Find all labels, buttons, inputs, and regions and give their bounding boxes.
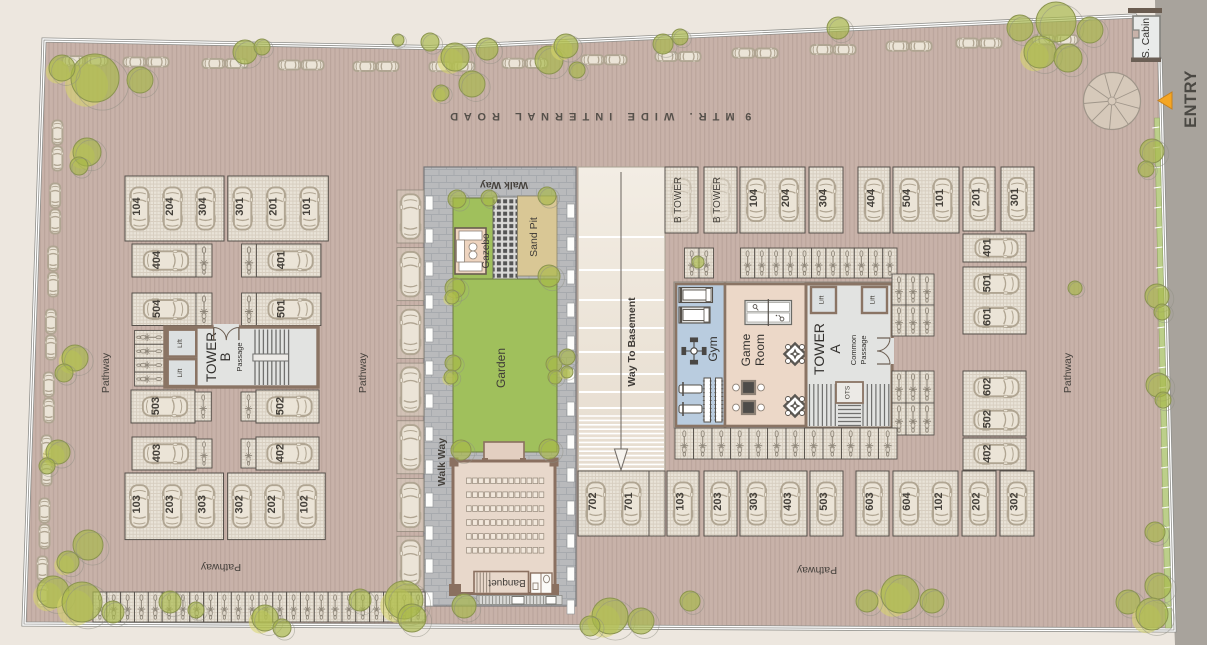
svg-text:404: 404: [151, 250, 163, 269]
svg-text:303: 303: [197, 495, 209, 513]
svg-text:403: 403: [782, 492, 794, 510]
svg-text:402: 402: [275, 444, 287, 462]
svg-text:702: 702: [587, 492, 599, 510]
svg-text:501: 501: [276, 300, 288, 318]
svg-text:B TOWER: B TOWER: [712, 177, 723, 223]
svg-text:B TOWER: B TOWER: [673, 177, 684, 223]
svg-text:OTS: OTS: [845, 385, 852, 399]
svg-text:401: 401: [276, 251, 288, 269]
svg-text:404: 404: [866, 188, 878, 207]
svg-text:9 M T R . W I D E I N T E: 9 M T R . W I D E I N T E R N A L R O A …: [449, 110, 752, 122]
svg-text:202: 202: [971, 492, 983, 510]
svg-text:104: 104: [748, 188, 760, 207]
svg-text:504: 504: [901, 188, 913, 207]
svg-text:Gazebo: Gazebo: [481, 233, 492, 268]
svg-text:Sand Pit: Sand Pit: [528, 217, 540, 257]
svg-text:103: 103: [675, 492, 687, 510]
svg-text:502: 502: [982, 410, 994, 428]
svg-text:Common: Common: [849, 335, 858, 365]
svg-text:201: 201: [268, 197, 280, 215]
svg-text:301: 301: [1009, 188, 1021, 206]
svg-text:304: 304: [197, 196, 209, 215]
svg-text:604: 604: [901, 491, 913, 510]
svg-text:Pathway: Pathway: [200, 561, 241, 573]
svg-text:Room: Room: [753, 334, 767, 366]
svg-text:301: 301: [234, 197, 246, 215]
svg-text:Banquet: Banquet: [488, 577, 525, 588]
svg-text:Garden: Garden: [494, 348, 508, 388]
svg-text:103: 103: [131, 495, 143, 513]
svg-text:S. Cabin: S. Cabin: [1140, 18, 1152, 58]
svg-text:202: 202: [266, 495, 278, 513]
svg-text:B: B: [218, 352, 233, 361]
svg-text:ENTRY: ENTRY: [1182, 70, 1200, 128]
svg-text:Pathway: Pathway: [357, 352, 369, 393]
svg-text:302: 302: [233, 495, 245, 513]
svg-text:204: 204: [164, 196, 176, 215]
svg-text:101: 101: [301, 197, 313, 215]
svg-text:Pathway: Pathway: [100, 352, 112, 393]
svg-text:102: 102: [933, 492, 945, 510]
svg-text:Passage: Passage: [235, 342, 244, 371]
svg-text:504: 504: [151, 299, 163, 318]
svg-text:204: 204: [780, 188, 792, 207]
svg-text:Walk Way: Walk Way: [436, 438, 448, 486]
svg-text:203: 203: [712, 492, 724, 510]
svg-text:603: 603: [864, 492, 876, 510]
svg-text:601: 601: [982, 308, 994, 326]
svg-text:101: 101: [934, 189, 946, 207]
svg-text:104: 104: [131, 196, 143, 215]
svg-text:302: 302: [1009, 492, 1021, 510]
svg-text:Lift: Lift: [870, 295, 877, 304]
svg-text:701: 701: [623, 492, 635, 510]
svg-text:A: A: [827, 344, 843, 354]
svg-text:Pathway: Pathway: [796, 564, 837, 576]
svg-text:Walk Way: Walk Way: [480, 179, 528, 191]
svg-text:201: 201: [971, 188, 983, 206]
svg-text:403: 403: [151, 444, 163, 462]
svg-text:Gym: Gym: [706, 336, 720, 361]
svg-text:402: 402: [982, 444, 994, 462]
svg-text:401: 401: [982, 238, 994, 256]
svg-text:503: 503: [818, 492, 830, 510]
svg-text:602: 602: [982, 378, 994, 396]
svg-text:Lift: Lift: [177, 339, 184, 348]
svg-text:Lift: Lift: [177, 368, 184, 377]
svg-text:Way To Basement: Way To Basement: [626, 297, 638, 387]
svg-text:TOWER: TOWER: [811, 323, 827, 375]
svg-text:TOWER: TOWER: [204, 332, 219, 382]
svg-text:503: 503: [150, 397, 162, 415]
svg-text:501: 501: [982, 274, 994, 292]
svg-text:Pathway: Pathway: [1062, 352, 1074, 393]
svg-text:203: 203: [164, 495, 176, 513]
svg-text:102: 102: [298, 495, 310, 513]
svg-text:Game: Game: [739, 333, 753, 366]
svg-text:Lift: Lift: [819, 295, 826, 304]
svg-text:Passage: Passage: [859, 335, 868, 364]
svg-text:502: 502: [275, 397, 287, 415]
svg-text:303: 303: [748, 492, 760, 510]
svg-text:304: 304: [818, 188, 830, 207]
